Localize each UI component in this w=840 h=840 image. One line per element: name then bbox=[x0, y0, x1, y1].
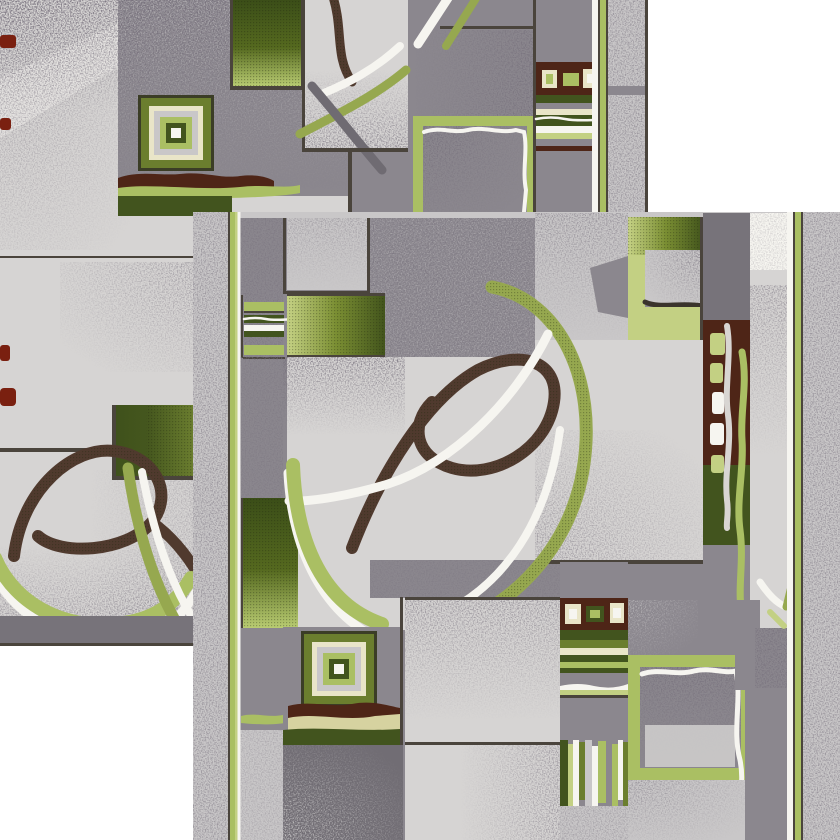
gradient-bar-center bbox=[287, 293, 385, 358]
red-edge-mark-4 bbox=[0, 118, 11, 130]
carpet-panel-bottom-right bbox=[193, 211, 840, 840]
red-edge-mark-2 bbox=[0, 388, 16, 406]
carpet-pattern-image bbox=[0, 0, 840, 840]
carpet-pattern-svg bbox=[0, 0, 840, 840]
wavy-band-motif-2 bbox=[283, 703, 400, 745]
wavy-frame-square-1 bbox=[413, 116, 537, 216]
maroon-inset-panel-2 bbox=[560, 562, 628, 740]
speckled-border-strip-panel1 bbox=[608, 0, 648, 212]
red-edge-mark-1 bbox=[0, 345, 10, 361]
red-edge-mark-3 bbox=[0, 35, 16, 48]
pinstripe-border-panel2-left bbox=[193, 212, 241, 840]
nested-squares-motif-1 bbox=[138, 95, 214, 171]
gradient-square-top bbox=[230, 0, 305, 90]
pinstripe-border-panel1-right bbox=[592, 0, 608, 212]
nested-squares-motif-2 bbox=[301, 631, 377, 707]
vertical-bars-block bbox=[560, 740, 628, 840]
wavy-frame-square-2 bbox=[628, 600, 753, 840]
gradient-square-blob bbox=[628, 217, 703, 340]
pinstripe-border-panel2-right bbox=[787, 212, 840, 840]
